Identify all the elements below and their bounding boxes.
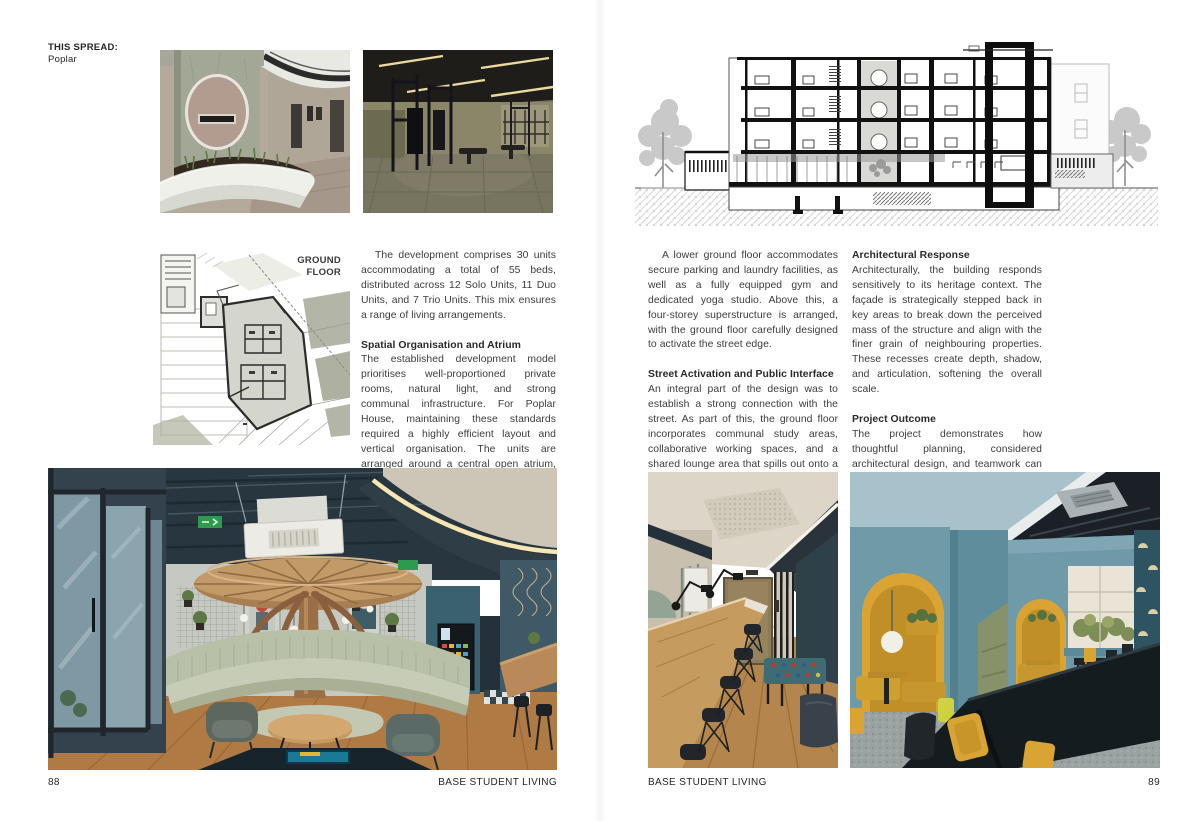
lounge-photo-graphic [48, 468, 557, 770]
heading-architectural-response: Architectural Response [852, 249, 1042, 264]
plan-label: GROUND FLOOR [241, 255, 341, 279]
footer-title-right: BASE STUDENT LIVING [648, 777, 868, 788]
photo-gym [363, 50, 553, 213]
section-graphic [633, 36, 1160, 232]
page-number-right: 89 [1100, 777, 1160, 788]
page-gutter [594, 0, 606, 821]
atrium-photo-graphic [160, 50, 350, 213]
heading-spatial-organisation: Spatial Organisation and Atrium [361, 339, 556, 354]
spread-label-title: THIS SPREAD: [48, 42, 118, 53]
paragraph-architectural-response: Architecturally, the building responds s… [852, 264, 1042, 398]
magazine-spread: THIS SPREAD: Poplar [0, 0, 1200, 821]
photo-lounge-tree-column [48, 468, 557, 770]
paragraph-lower-ground: A lower ground floor accommodates secure… [648, 249, 838, 353]
spread-label: THIS SPREAD: Poplar [48, 42, 118, 66]
heading-project-outcome: Project Outcome [852, 413, 1042, 428]
heading-street-activation: Street Activation and Public Interface [648, 368, 838, 383]
glass-entry-doors [48, 468, 166, 758]
exit-sign-right [398, 560, 418, 570]
footer-title-left: BASE STUDENT LIVING [357, 777, 557, 788]
photo-study-corridor [648, 472, 838, 768]
exit-sign-left [198, 516, 222, 528]
page-number-left: 88 [48, 777, 108, 788]
plan-label-line2: FLOOR [307, 267, 342, 278]
spread-label-value: Poplar [48, 54, 77, 65]
paragraph-development-mix: The development comprises 30 units accom… [361, 249, 556, 324]
study-photo-graphic [850, 472, 1160, 768]
gym-photo-graphic [363, 50, 553, 213]
photo-study-room-booths [850, 472, 1160, 768]
window-greenery [1064, 566, 1138, 656]
building-section-drawing [633, 36, 1160, 232]
plan-label-line1: GROUND [297, 255, 341, 266]
arch-booth-left [850, 527, 950, 712]
corridor-photo-graphic [648, 472, 838, 768]
photo-atrium-planter [160, 50, 350, 213]
